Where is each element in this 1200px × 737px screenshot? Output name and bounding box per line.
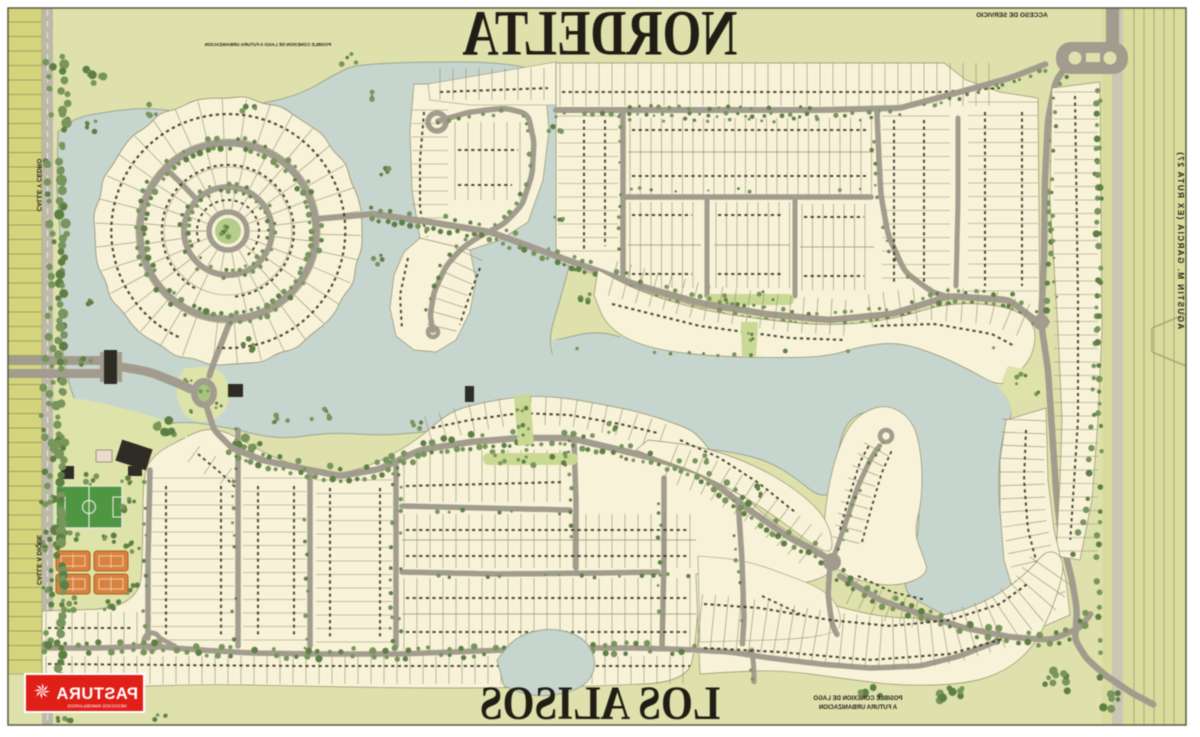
svg-text:LOS ALISOS: LOS ALISOS [480,677,720,729]
svg-text:AGUSTIN M. GARCIA (EX RUTA 27): AGUSTIN M. GARCIA (EX RUTA 27) [1176,151,1185,329]
svg-text:CALLE A DIQUE: CALLE A DIQUE [35,534,42,585]
svg-text:POSIBLE CONEXION DE LAGO: POSIBLE CONEXION DE LAGO [813,696,902,702]
svg-text:PASTURA: PASTURA [56,685,138,703]
svg-text:NORDELTA: NORDELTA [462,0,737,69]
svg-text:CALLE Y CEDRO: CALLE Y CEDRO [35,159,42,212]
svg-text:ACCESO DE SERVICIO: ACCESO DE SERVICIO [976,12,1047,19]
svg-text:POSIBLE CONEXION DE LAGO A FUT: POSIBLE CONEXION DE LAGO A FUTURA URBANI… [205,42,332,47]
svg-text:NEGOCIOS INMOBILIARIOS: NEGOCIOS INMOBILIARIOS [67,704,126,709]
svg-text:A FUTURA URBANIZACION: A FUTURA URBANIZACION [819,705,897,711]
